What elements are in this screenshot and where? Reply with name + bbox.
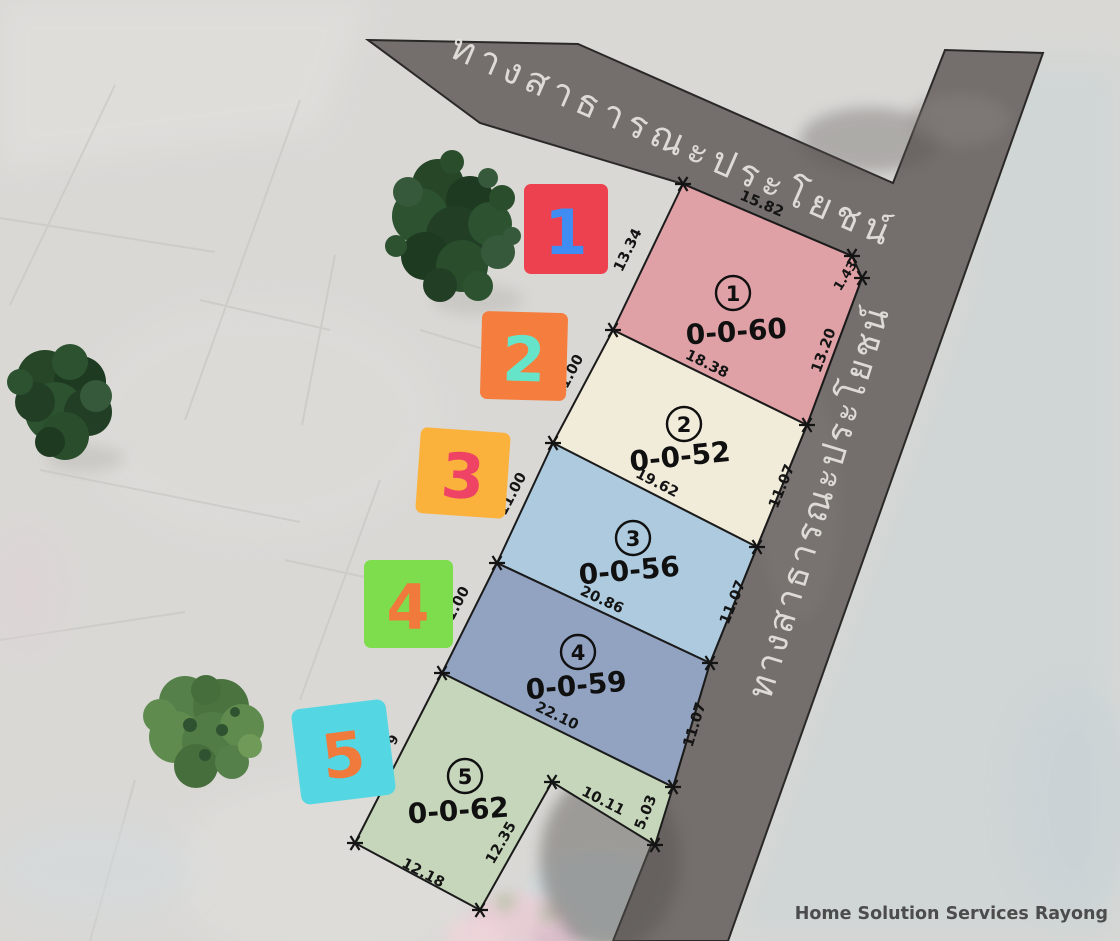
plot-3-number: 3 bbox=[626, 527, 641, 551]
site-plan-canvas: ทางสาธารณะประโยชน์ ทางสาธารณะประโยชน์ 1 … bbox=[0, 0, 1120, 941]
marker-badge-1-number: 1 bbox=[544, 196, 587, 269]
marker-badge-2: 2 bbox=[480, 311, 568, 401]
scanned-site-plan: ทางสาธารณะประโยชน์ ทางสาธารณะประโยชน์ 1 … bbox=[0, 0, 1120, 941]
marker-badge-4: 4 bbox=[364, 560, 453, 648]
marker-badge-3-number: 3 bbox=[439, 438, 487, 514]
marker-badge-2-number: 2 bbox=[501, 322, 546, 396]
plot-4-number: 4 bbox=[571, 641, 586, 665]
marker-badge-5: 5 bbox=[291, 699, 397, 806]
marker-badge-3: 3 bbox=[415, 427, 511, 519]
plot-5-number: 5 bbox=[458, 765, 473, 789]
marker-badge-4-number: 4 bbox=[386, 571, 429, 644]
watermark: Home Solution Services Rayong bbox=[795, 904, 1108, 924]
plot-1-number: 1 bbox=[726, 282, 741, 306]
marker-badge-1: 1 bbox=[524, 184, 608, 274]
plot-2-number: 2 bbox=[677, 413, 692, 437]
plot-1-area: 0-0-60 bbox=[685, 312, 788, 352]
marker-badge-5-number: 5 bbox=[318, 716, 370, 794]
plot-5-area: 0-0-62 bbox=[407, 791, 510, 831]
